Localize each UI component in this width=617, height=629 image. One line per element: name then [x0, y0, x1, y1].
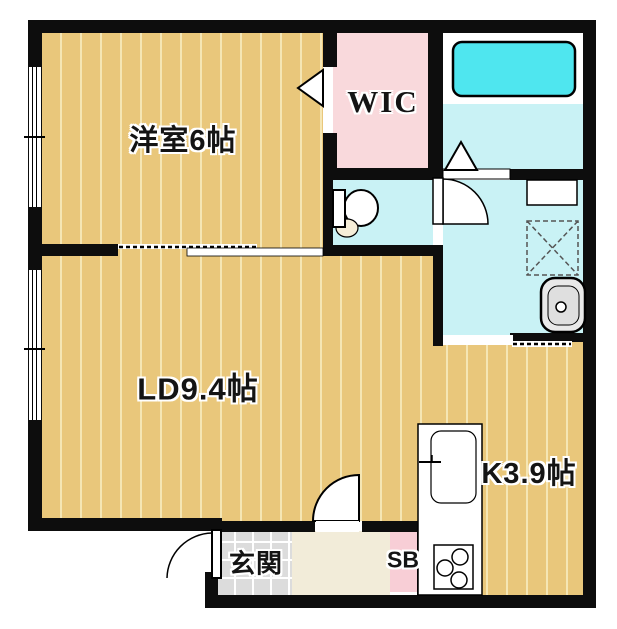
washroom-counter	[527, 180, 577, 205]
living-door-swing	[313, 475, 359, 521]
label-kitchen: K3.9帖	[481, 450, 576, 492]
toilet-tank	[333, 190, 345, 227]
stove-burner	[452, 549, 468, 565]
label-living-dining: LD9.4帖	[137, 364, 258, 409]
entrance-door-swing	[167, 533, 212, 578]
living-door-opening	[316, 521, 359, 532]
bathtub	[453, 42, 575, 96]
fixtures-layer	[0, 0, 617, 629]
stove-burner	[451, 572, 467, 588]
washroom-door-open	[443, 335, 513, 345]
toilet-door-swing	[443, 179, 488, 224]
entrance-door-leaf	[212, 530, 221, 578]
label-entrance: 玄関	[229, 544, 283, 581]
floor-plan: 洋室6帖 WIC LD9.4帖 K3.9帖 玄関 SB	[0, 0, 617, 629]
toilet-door-leaf	[433, 178, 443, 224]
bath-folding-door-icon	[445, 142, 477, 170]
washbasin-drain	[556, 302, 566, 312]
wic-door-icon	[298, 70, 323, 106]
label-shoe-box: SB	[387, 547, 419, 574]
label-western-room: 洋室6帖	[129, 117, 236, 159]
sliding-door-panel	[187, 248, 323, 256]
label-wic: WIC	[347, 84, 418, 120]
stove-burner	[437, 560, 453, 576]
kitchen-sink	[431, 431, 476, 503]
